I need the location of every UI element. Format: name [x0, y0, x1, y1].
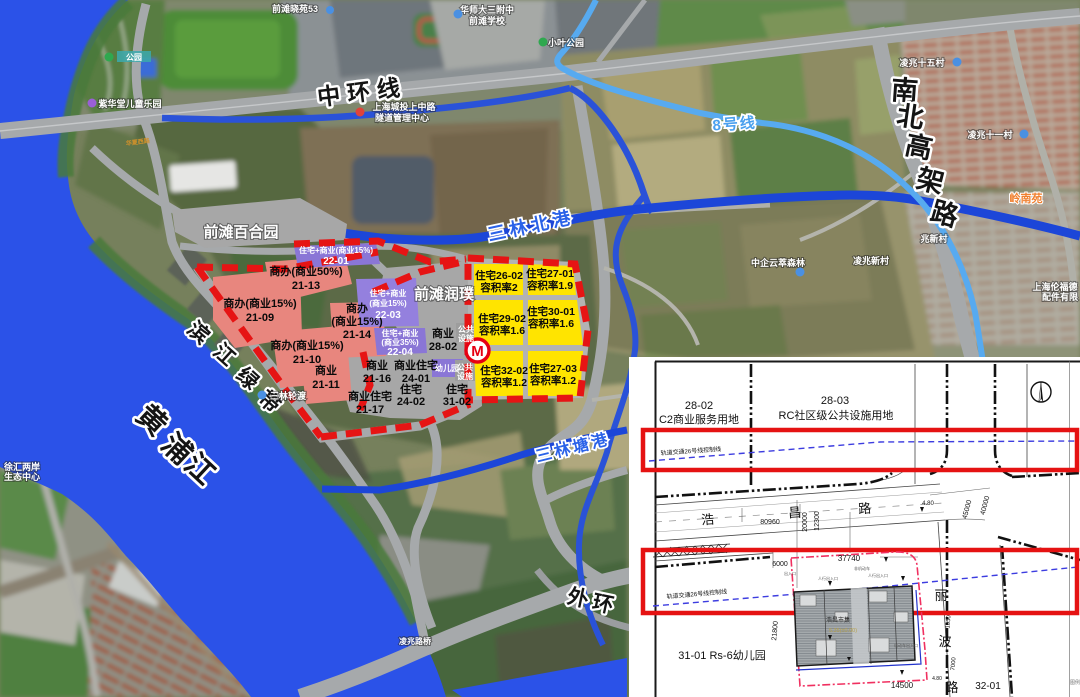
- svg-text:21-14: 21-14: [343, 329, 372, 341]
- svg-text:住宅30-01: 住宅30-01: [527, 305, 575, 318]
- svg-text:22-04: 22-04: [387, 347, 413, 358]
- svg-text:21-09: 21-09: [246, 312, 274, 324]
- svg-text:20000: 20000: [802, 512, 809, 532]
- svg-text:机动车出入口: 机动车出入口: [894, 642, 918, 648]
- svg-text:21-17: 21-17: [356, 404, 384, 416]
- svg-text:浩: 浩: [701, 512, 715, 528]
- svg-text:商办(商业15%): 商办(商业15%): [270, 338, 344, 352]
- svg-text:住宅+商业: 住宅+商业: [382, 328, 419, 338]
- svg-text:28-02: 28-02: [429, 341, 457, 353]
- svg-text:上海城投上中路: 上海城投上中路: [372, 101, 436, 112]
- svg-text:21-16: 21-16: [363, 373, 391, 385]
- svg-text:住宅27-03: 住宅27-03: [529, 362, 577, 375]
- svg-text:住宅: 住宅: [446, 382, 468, 396]
- svg-text:80960: 80960: [760, 519, 780, 526]
- svg-text:路: 路: [945, 680, 958, 695]
- svg-text:幼儿园: 幼儿园: [435, 363, 459, 373]
- svg-text:华师大三附中: 华师大三附中: [460, 4, 514, 15]
- svg-text:7000: 7000: [950, 656, 957, 670]
- svg-text:商办(商业15%): 商办(商业15%): [223, 296, 297, 310]
- svg-text:小叶公园: 小叶公园: [547, 37, 584, 48]
- svg-text:21-11: 21-11: [312, 379, 340, 391]
- svg-text:22-01: 22-01: [323, 256, 349, 267]
- svg-text:32-01: 32-01: [975, 681, 1001, 692]
- svg-text:人行出入口: 人行出入口: [868, 572, 888, 578]
- svg-text:出入口: 出入口: [784, 570, 796, 576]
- svg-text:公共: 公共: [457, 362, 473, 372]
- svg-text:4.80: 4.80: [932, 676, 942, 682]
- svg-text:中企云萃森林: 中企云萃森林: [751, 257, 806, 268]
- svg-text:设施: 设施: [457, 371, 473, 381]
- svg-text:前滩晓苑53: 前滩晓苑53: [272, 3, 318, 14]
- svg-text:5.35(±0.00): 5.35(±0.00): [829, 628, 857, 634]
- svg-text:丽: 丽: [934, 588, 947, 603]
- svg-text:前滩学校: 前滩学校: [469, 15, 506, 26]
- svg-text:37740: 37740: [838, 554, 861, 563]
- svg-text:凌兆路桥: 凌兆路桥: [399, 636, 432, 646]
- svg-text:住宅27-01: 住宅27-01: [526, 267, 574, 280]
- svg-text:12300: 12300: [814, 511, 821, 531]
- svg-text:31-02: 31-02: [443, 396, 471, 408]
- svg-text:商业住宅: 商业住宅: [394, 358, 438, 372]
- svg-text:公共: 公共: [458, 324, 474, 334]
- svg-text:前滩润璞: 前滩润璞: [414, 285, 475, 303]
- svg-text:配件有限: 配件有限: [1042, 291, 1079, 302]
- svg-text:C2商业服务用地: C2商业服务用地: [659, 412, 739, 426]
- svg-text:住宅32-02: 住宅32-02: [480, 364, 528, 377]
- svg-text:容积率1.2: 容积率1.2: [480, 376, 527, 389]
- svg-text:商业: 商业: [315, 363, 337, 377]
- svg-text:31-01 Rs-6幼儿园: 31-01 Rs-6幼儿园: [678, 649, 765, 662]
- svg-text:昌: 昌: [788, 505, 802, 521]
- svg-text:商业: 商业: [432, 326, 454, 340]
- svg-text:1050: 1050: [945, 614, 952, 628]
- svg-text:容积率1.9: 容积率1.9: [526, 279, 573, 292]
- svg-text:14500: 14500: [891, 681, 914, 690]
- svg-text:(商业35%): (商业35%): [381, 337, 419, 347]
- svg-text:住宅+商业(商业15%): 住宅+商业(商业15%): [299, 245, 373, 255]
- svg-text:21-13: 21-13: [292, 280, 320, 292]
- svg-text:容积率1.6: 容积率1.6: [478, 324, 525, 337]
- svg-text:容积率1.6: 容积率1.6: [527, 317, 574, 330]
- svg-text:生态中心: 生态中心: [4, 471, 40, 482]
- svg-text:容积率1.2: 容积率1.2: [529, 374, 576, 387]
- svg-text:M: M: [471, 343, 484, 360]
- svg-text:28-02: 28-02: [685, 400, 713, 412]
- svg-text:浩昌市集: 浩昌市集: [826, 616, 850, 624]
- svg-text:22-03: 22-03: [375, 310, 401, 321]
- svg-text:住宅: 住宅: [400, 382, 422, 396]
- svg-text:设施: 设施: [458, 333, 474, 343]
- svg-text:RC社区级公共设施用地: RC社区级公共设施用地: [779, 408, 894, 422]
- svg-text:岭南苑: 岭南苑: [1010, 191, 1043, 205]
- svg-text:隧道管理中心: 隧道管理中心: [375, 112, 429, 123]
- svg-text:凌兆新村: 凌兆新村: [853, 255, 889, 266]
- svg-text:上海伦福德: 上海伦福德: [1032, 281, 1077, 292]
- svg-text:非机动车: 非机动车: [854, 565, 870, 571]
- svg-text:商业: 商业: [366, 358, 388, 372]
- svg-text:(商业15%): (商业15%): [369, 298, 407, 308]
- svg-text:兆新村: 兆新村: [920, 233, 947, 244]
- svg-text:前滩百合园: 前滩百合园: [203, 223, 278, 241]
- svg-text:紫华堂儿童乐园: 紫华堂儿童乐园: [98, 98, 161, 109]
- svg-text:4.80: 4.80: [922, 501, 934, 507]
- svg-text:三林轮渡: 三林轮渡: [270, 390, 307, 401]
- svg-text:凌兆十一村: 凌兆十一村: [967, 129, 1012, 140]
- svg-text:24-02: 24-02: [397, 396, 425, 408]
- svg-text:商办: 商办: [346, 301, 368, 315]
- svg-text:8号线: 8号线: [712, 113, 757, 134]
- svg-text:商业住宅: 商业住宅: [348, 389, 392, 403]
- svg-text:住宅+商业: 住宅+商业: [370, 288, 407, 298]
- svg-text:徐汇两岸: 徐汇两岸: [3, 461, 40, 472]
- svg-text:路: 路: [858, 501, 872, 517]
- svg-text:容积率2: 容积率2: [479, 281, 517, 294]
- svg-text:图例: 图例: [1070, 679, 1080, 686]
- svg-text:凌兆十五村: 凌兆十五村: [899, 57, 944, 68]
- svg-text:28-03: 28-03: [821, 395, 849, 407]
- svg-text:住宅29-02: 住宅29-02: [478, 312, 526, 325]
- svg-text:住宅26-02: 住宅26-02: [475, 269, 523, 282]
- svg-text:波: 波: [938, 634, 951, 649]
- svg-text:6000: 6000: [772, 561, 788, 568]
- svg-text:公园: 公园: [126, 53, 142, 62]
- svg-text:人行出入口: 人行出入口: [818, 575, 838, 581]
- svg-text:北: 北: [895, 100, 926, 133]
